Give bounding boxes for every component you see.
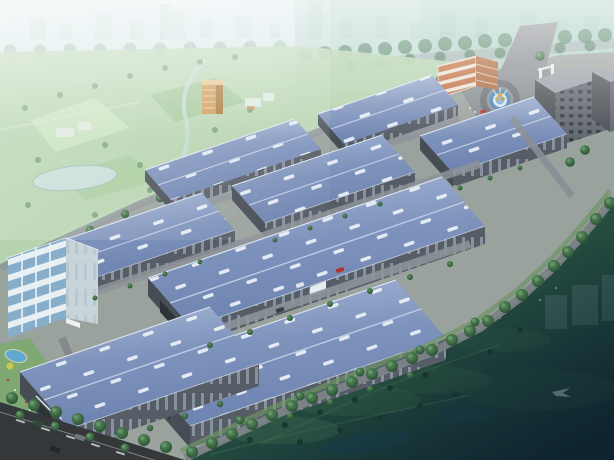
rendering-canvas (0, 0, 614, 460)
haze-overlay-left (0, 0, 330, 240)
industrial-park-rendering (0, 0, 614, 460)
